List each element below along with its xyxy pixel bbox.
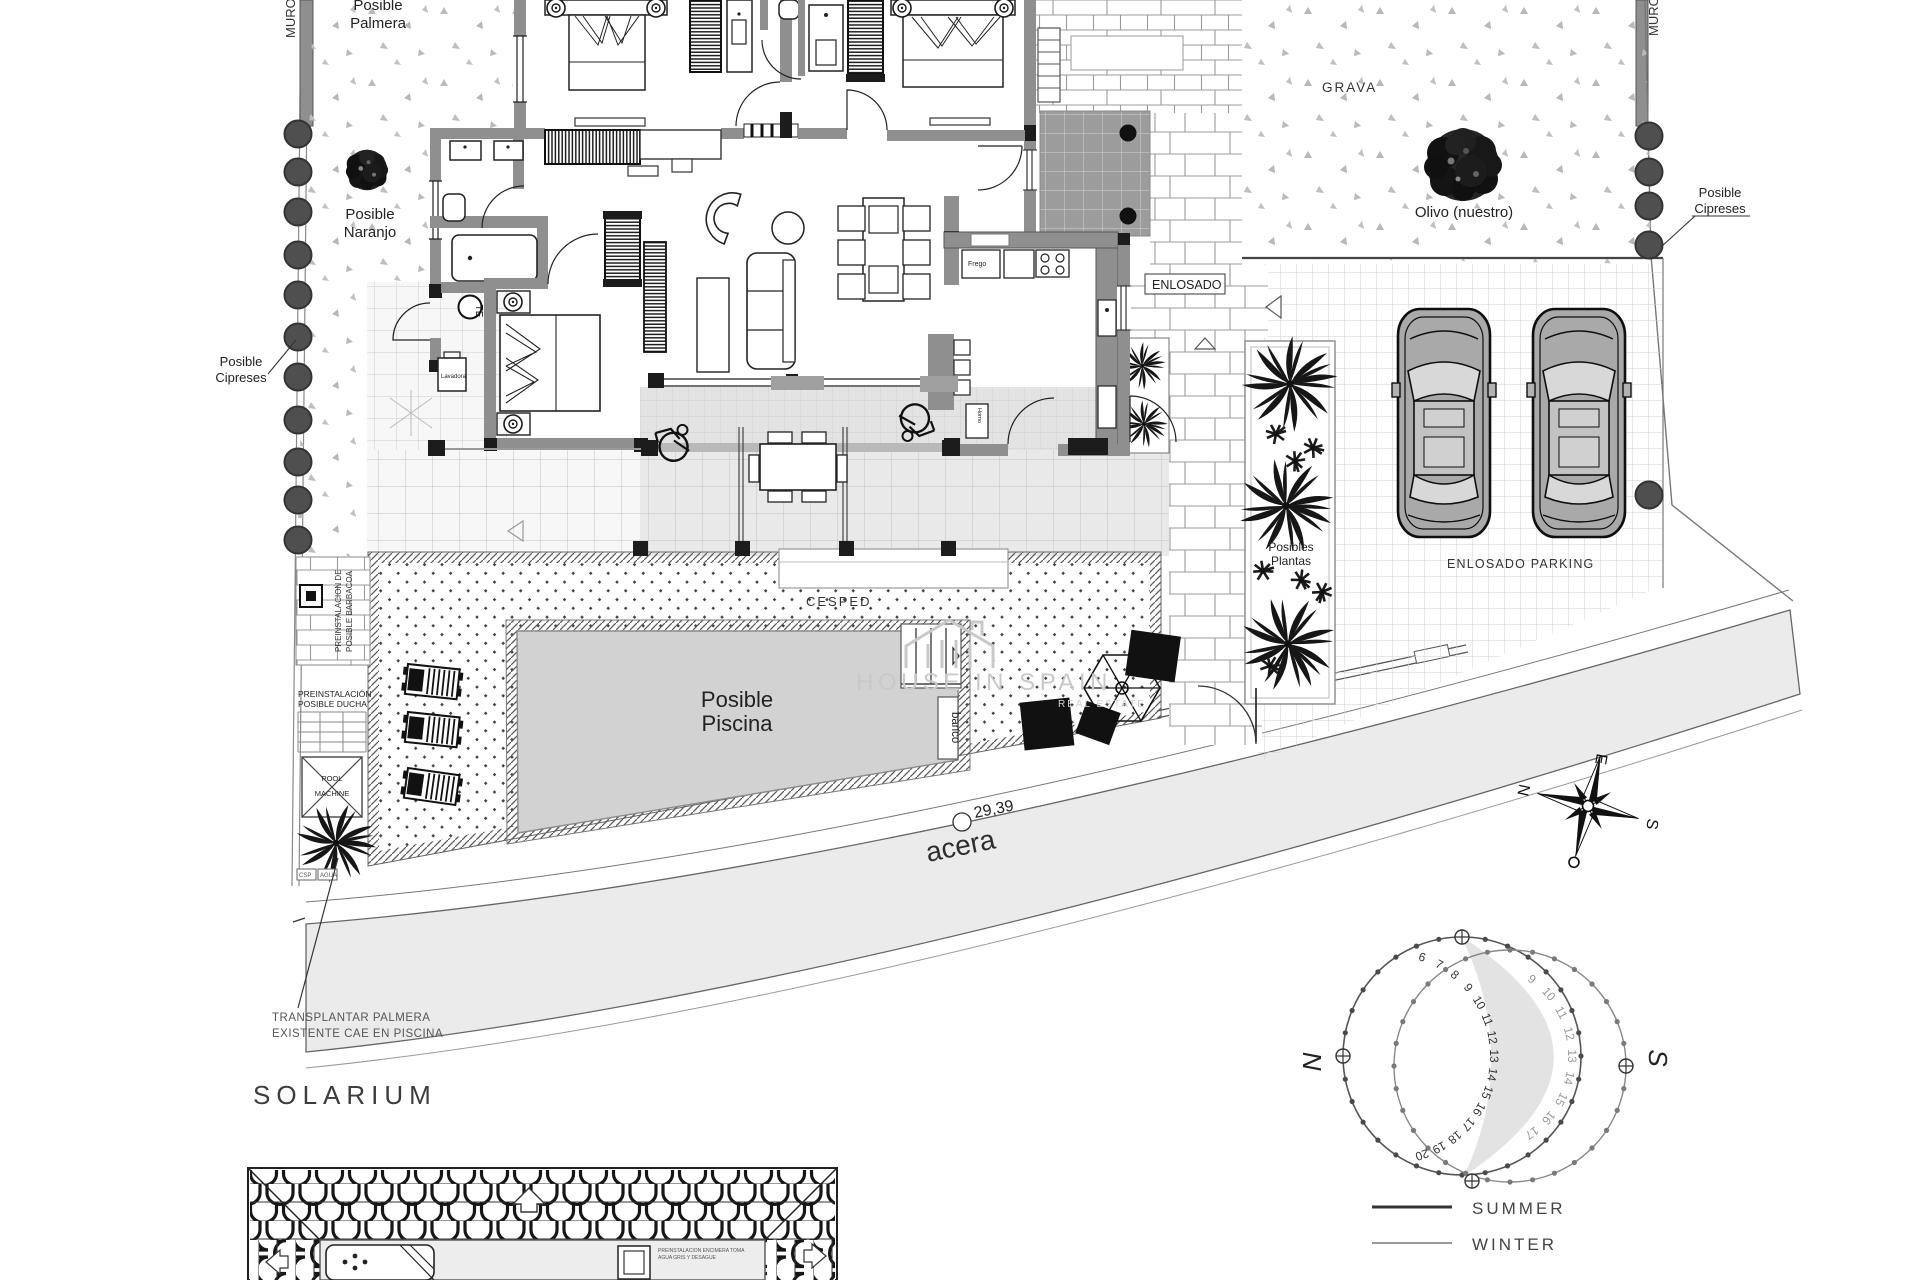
svg-text:banco: banco: [949, 712, 961, 743]
svg-text:EXISTENTE CAE EN PISCINA: EXISTENTE CAE EN PISCINA: [272, 1028, 443, 1040]
svg-text:Lavadora: Lavadora: [441, 374, 467, 380]
svg-text:SUMMER: SUMMER: [1472, 1199, 1566, 1218]
svg-text:POSIBLE DUCHA: POSIBLE DUCHA: [298, 699, 367, 709]
svg-text:AGUA: AGUA: [320, 873, 337, 879]
svg-text:N: N: [1297, 1052, 1327, 1071]
svg-text:Posible: Posible: [701, 687, 773, 712]
svg-text:Posible: Posible: [345, 206, 394, 223]
svg-text:Posible: Posible: [220, 354, 263, 369]
svg-text:CESPED: CESPED: [806, 594, 871, 609]
svg-text:13: 13: [1487, 1049, 1501, 1063]
svg-text:12: 12: [1484, 1030, 1500, 1046]
svg-text:Naranjo: Naranjo: [344, 224, 397, 241]
svg-text:Posible: Posible: [353, 0, 402, 14]
svg-text:Cipreses: Cipreses: [215, 370, 267, 385]
svg-text:Frego: Frego: [968, 261, 986, 268]
svg-text:POSIBLE BARBACOA: POSIBLE BARBACOA: [345, 570, 354, 652]
svg-text:REAL ESTATE: REAL ESTATE: [1058, 699, 1146, 710]
svg-text:PREINSTALACION ENCIMERA TOMA: PREINSTALACION ENCIMERA TOMA: [658, 1248, 745, 1254]
svg-text:PREINSTALACION DE: PREINSTALACION DE: [334, 569, 343, 652]
svg-text:TE: TE: [473, 305, 484, 318]
svg-text:Posibles: Posibles: [1268, 540, 1313, 554]
svg-text:Posible: Posible: [1699, 185, 1742, 200]
svg-text:S: S: [1643, 1049, 1673, 1067]
svg-text:PREINSTALACIÓN: PREINSTALACIÓN: [298, 689, 372, 699]
svg-text:Piscina: Piscina: [702, 711, 774, 736]
svg-text:14: 14: [1484, 1067, 1500, 1083]
svg-text:Palmera: Palmera: [350, 15, 407, 32]
svg-text:13: 13: [1565, 1049, 1579, 1063]
svg-text:Olivo (nuestro): Olivo (nuestro): [1415, 204, 1513, 221]
svg-text:WINTER: WINTER: [1472, 1235, 1557, 1254]
svg-text:TRANSPLANTAR PALMERA: TRANSPLANTAR PALMERA: [272, 1012, 430, 1024]
svg-text:HOUSE IN SPAIN: HOUSE IN SPAIN: [856, 669, 1112, 696]
svg-text:MURO: MURO: [1646, 0, 1661, 36]
svg-text:MURO: MURO: [283, 0, 298, 38]
svg-text:ENLOSADO PARKING: ENLOSADO PARKING: [1447, 557, 1594, 571]
svg-text:CSP: CSP: [299, 873, 311, 879]
svg-text:Plantas: Plantas: [1271, 554, 1311, 568]
svg-text:MACHINE: MACHINE: [315, 789, 350, 798]
svg-text:SOLARIUM: SOLARIUM: [253, 1080, 437, 1110]
svg-text:ENLOSADO: ENLOSADO: [1152, 278, 1222, 292]
svg-text:GRAVA: GRAVA: [1322, 80, 1377, 95]
svg-text:AGUA GRIS Y DESAGUE: AGUA GRIS Y DESAGUE: [658, 1255, 717, 1261]
svg-text:Horno: Horno: [976, 408, 982, 423]
svg-text:POOL: POOL: [322, 774, 343, 783]
svg-text:Cipreses: Cipreses: [1694, 201, 1746, 216]
